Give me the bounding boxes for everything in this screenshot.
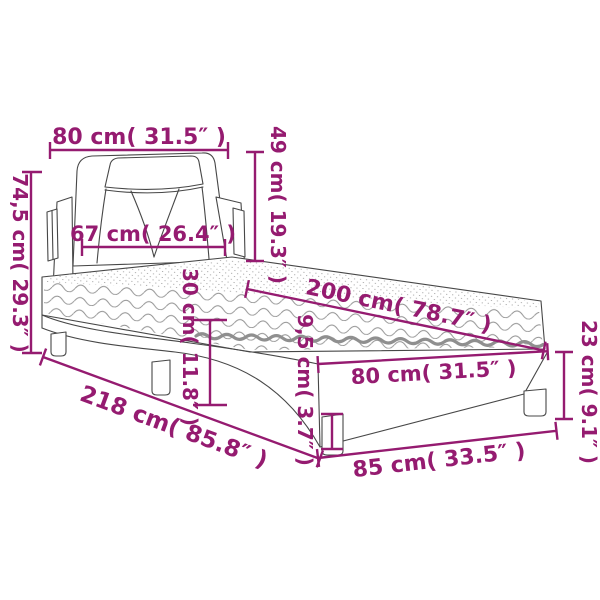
- dim-line: [246, 152, 264, 261]
- dim-label-foot-end-height: 23 cm( 9.1″ ): [577, 320, 600, 464]
- dimension-overall-height: 74,5 cm( 29.3″ ): [8, 172, 42, 353]
- dim-line: [555, 352, 573, 419]
- headboard-cushion: [105, 156, 203, 189]
- dim-label-mattress-side-height: 30 cm( 11.8″ ): [178, 268, 202, 426]
- dim-label-frame-rail-height: 9,5 cm( 3.7″ ): [293, 314, 317, 466]
- dimension-diagram: 80 cm( 31.5″ ) 49 cm( 19.3″ ) 74,5 cm( 2…: [0, 0, 600, 600]
- dim-label-headboard-width: 80 cm( 31.5″ ): [52, 125, 226, 150]
- leg-front-left: [152, 360, 170, 395]
- dim-label-overall-length: 218 cm( 85.8″ ): [76, 381, 271, 474]
- dim-label-overall-height: 74,5 cm( 29.3″ ): [8, 173, 32, 353]
- bed-diagram-canvas: 80 cm( 31.5″ ) 49 cm( 19.3″ ) 74,5 cm( 2…: [0, 0, 600, 600]
- dimension-headboard-height: 49 cm( 19.3″ ): [246, 126, 290, 284]
- dimension-foot-end-height: 23 cm( 9.1″ ): [555, 320, 600, 464]
- dimension-overall-length: 218 cm( 85.8″ ): [31, 349, 323, 491]
- leg-rear-left: [51, 332, 66, 356]
- dim-label-headboard-height: 49 cm( 19.3″ ): [266, 126, 290, 284]
- dim-label-headboard-inner-width: 67 cm( 26.4″ ): [70, 222, 236, 246]
- leg-foot-right: [524, 389, 546, 416]
